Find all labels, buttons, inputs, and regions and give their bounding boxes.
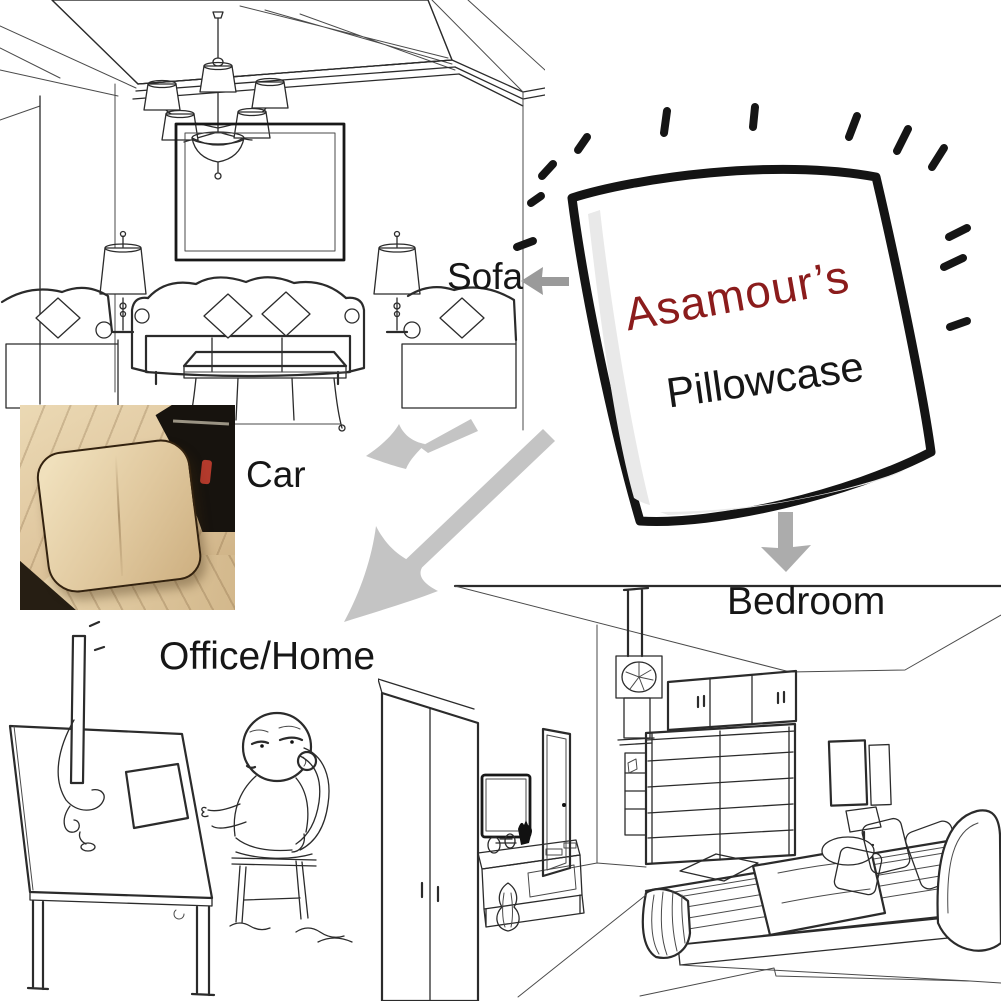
- arrow-down-to-bedroom-icon: [761, 512, 811, 572]
- arrow-to-car-icon: [366, 419, 478, 469]
- office-home-label: Office/Home: [159, 637, 375, 676]
- sofa-label: Sofa: [447, 258, 523, 295]
- car-label: Car: [246, 456, 306, 493]
- product-usage-collage: Sofa Car Office/Home Bedroom Asamour’s P…: [0, 0, 1001, 1001]
- overlay-graphics: [0, 0, 1001, 1001]
- arrow-left-to-sofa-icon: [521, 267, 569, 295]
- bedroom-label: Bedroom: [727, 582, 885, 621]
